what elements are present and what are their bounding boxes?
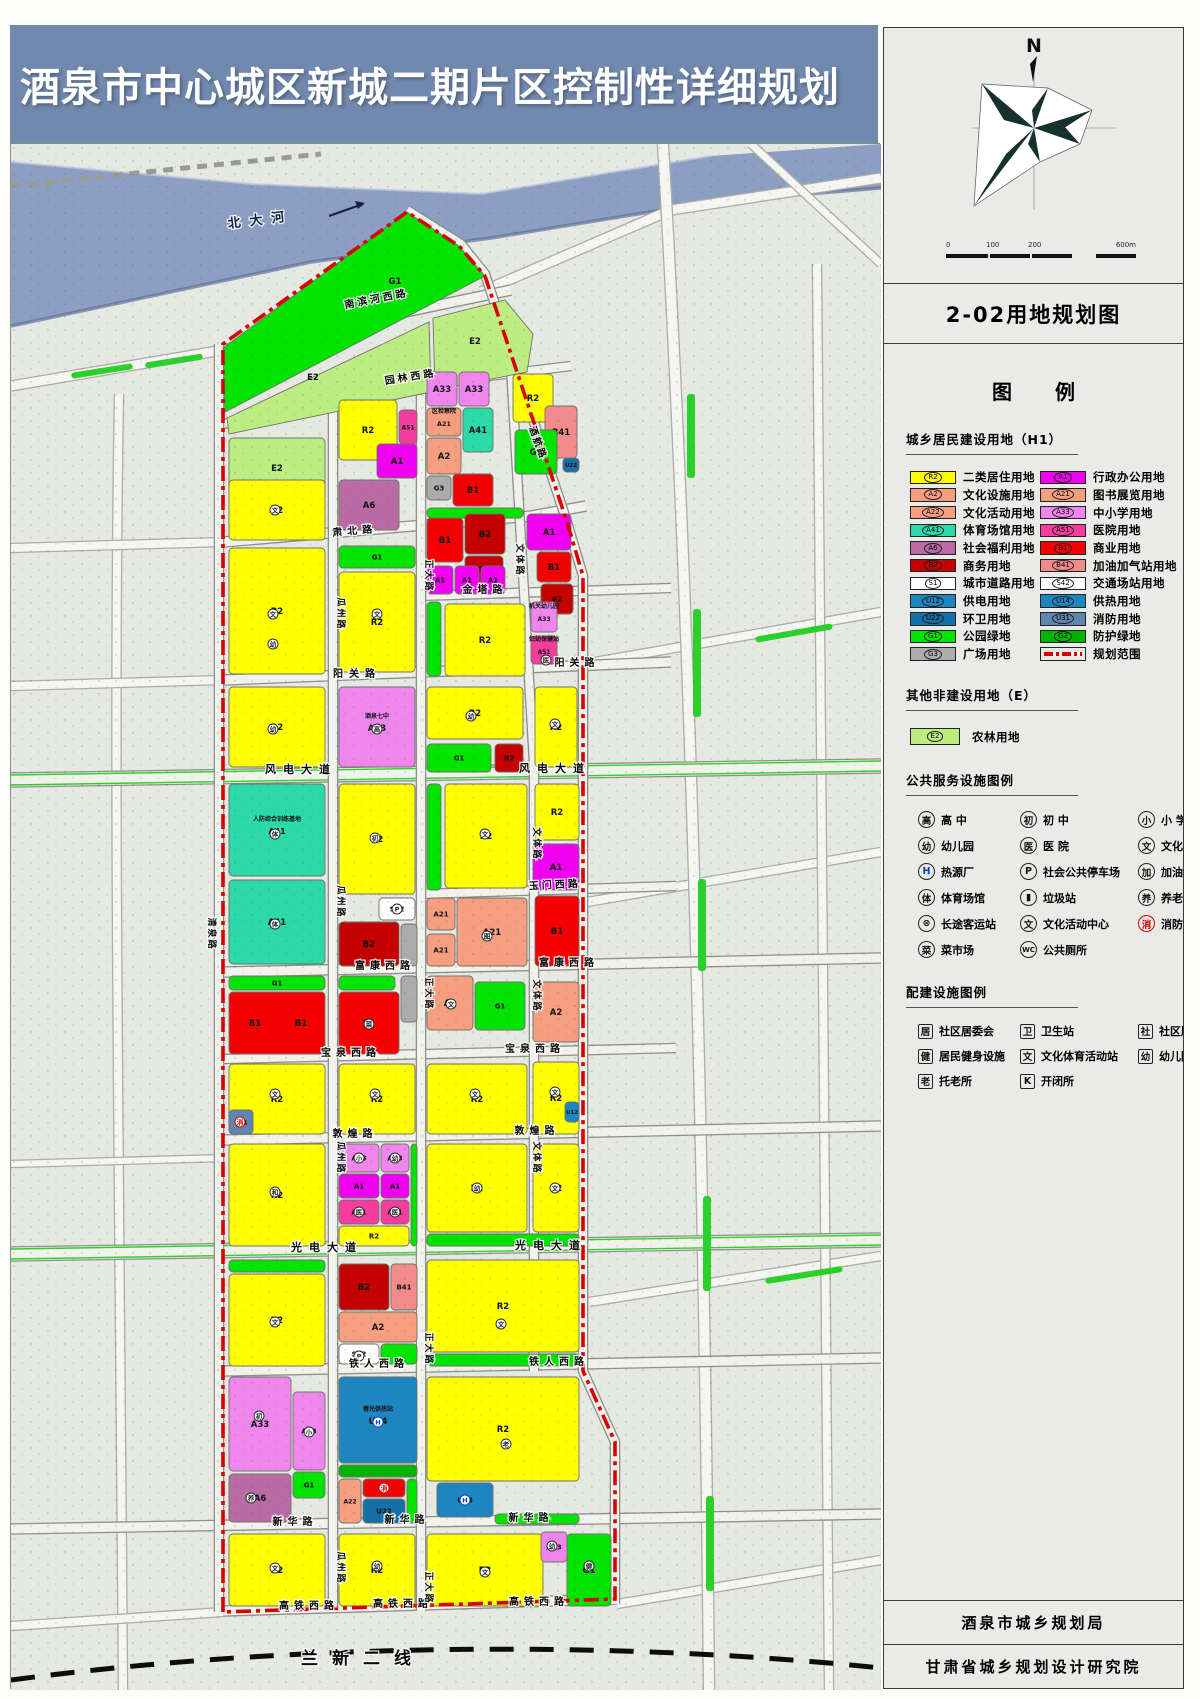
facility-marker-glyph: 文 [481,829,489,838]
legend-section: 图 例 城乡居民建设用地（H1） R2二类居住用地A1行政办公用地A2文化设施用… [884,344,1183,1601]
road-name-label: 光电大道 [514,1238,587,1252]
legend-item-label: 商业用地 [1093,540,1141,556]
legend-item: G2防护绿地 [1040,629,1177,644]
scale-tick-100: 100 [986,241,999,249]
facility-marker-glyph: 养 [247,1493,255,1502]
road-name-label: 风电大道 [519,761,591,775]
legend-swatch: U22 [910,612,956,626]
road-name-label: 文体路 [531,978,543,1012]
legend-swatch-code: A22 [922,507,944,518]
map-sidebar: N 0 100 200 600m 2-02用地规划图 图 例 城乡居民建设用地（… [883,27,1184,1689]
legend-swatch: G3 [910,647,956,661]
green-median [687,394,695,478]
legend-facility-label: 高 中 [941,812,967,828]
legend-item: A2文化设施用地 [910,488,1040,503]
facility-marker-glyph: 文 [551,1087,559,1096]
legend-item: E2农林用地 [910,727,1177,746]
legend-swatch-code: G1 [924,631,942,642]
legend-swatch: G1 [910,630,956,644]
legend-facility-label: 医 院 [1043,838,1069,854]
boundary-swatch-icon [1044,652,1082,656]
facility-marker-glyph: P [395,905,400,913]
legend-facility-item: 医医 院 [1020,837,1138,854]
legend-facility-label: 热源厂 [941,864,974,880]
org-bureau: 酒泉市城乡规划局 [884,1601,1183,1645]
parcel-label: A21 [433,911,448,919]
legend-swatch-code: U12 [922,596,944,607]
legend-item-label: 中小学用地 [1093,505,1153,521]
legend-facility-label: 小 学 [1161,812,1183,828]
legend-item-label: 社会福利用地 [963,540,1035,556]
legend-item-label: 商务用地 [963,558,1011,574]
legend-facility-item: 社社区服务中心 [1138,1023,1183,1039]
parcel-label: B2 [504,755,514,763]
文化体育活动站-icon: 文 [1020,1049,1035,1064]
legend-item: A51医院用地 [1040,523,1177,538]
facility-marker-glyph: 文 [471,1089,479,1098]
parcel-label: A51 [402,424,415,431]
road-name-label: 敦煌路 [333,1127,378,1140]
卫生站-icon: 卫 [1020,1024,1035,1039]
legend-facility-item: 幼幼儿园 [1138,1048,1183,1064]
体育场馆-icon: 体 [918,889,935,906]
legend-swatch: B41 [1040,559,1086,573]
legend-item: B2商务用地 [910,558,1040,573]
road-name-label: 正大路 [423,977,435,1010]
facility-marker-glyph: 体 [272,919,279,928]
legend-item-label: 文化设施用地 [963,487,1035,503]
facility-marker-glyph: 幼 [374,1561,381,1570]
legend-heading-h1: 城乡居民建设用地（H1） [906,429,1078,455]
legend-item-label: 城市道路用地 [963,575,1035,591]
legend-facility-item: WC公共厕所 [1020,941,1138,958]
parcel-label: A22 [344,1498,357,1505]
legend-facility-item: 小小 学 [1138,811,1183,828]
legend-swatch-code: G3 [924,649,942,660]
green-median [693,609,701,717]
legend-facility-label: 垃圾站 [1043,890,1076,906]
legend-facility-label: 养老院 [1161,890,1183,906]
parcel-label: B2 [363,940,375,950]
legend-facility-item: 卫卫生站 [1020,1023,1138,1039]
legend-item: U31消防用地 [1040,612,1177,627]
legend-item-label: 广场用地 [963,646,1011,662]
facility-marker-glyph: 文 [373,609,381,618]
facility-marker-glyph: 幼 [468,711,475,720]
facility-marker-glyph: 高 [374,724,381,733]
parcel-label: A33 [433,385,451,395]
parcel-label: A33 [538,616,551,623]
facility-marker-glyph: 文 [271,1563,279,1572]
社区居委会-icon: 居 [918,1024,933,1039]
legend-swatch: A33 [1040,506,1086,520]
文化活动中心-icon: 文 [1138,837,1155,854]
legend-facility-label: 社区服务中心 [1159,1023,1183,1039]
legend-facility-item: ▮垃圾站 [1020,889,1138,906]
legend-swatch-code: A33 [1052,507,1074,518]
legend-swatch-code: U14 [1052,596,1074,607]
road-name-label: 高铁西路 [279,1599,339,1612]
parcel-label: A1 [390,1183,400,1191]
parcel-label: G1 [304,1482,315,1490]
legend-item-label: 文化活动用地 [963,505,1035,521]
facility-marker-glyph: 文 [551,719,559,728]
legend-swatch: R2 [910,471,956,485]
facility-marker-glyph: 幼 [270,639,277,648]
road-name-label: 富康西路 [539,956,599,969]
legend-swatch: A22 [910,506,956,520]
legend-facility-label: 体育场馆 [941,890,985,906]
parcel-label: B1 [295,1019,307,1029]
legend-facilities-grid: 高高 中初初 中小小 学幼幼儿园医医 院文文化活动中心H热源厂P社会公共停车场加… [918,811,1179,958]
legend-facility-item: 幼幼儿园 [918,837,1020,854]
居民健身设施-icon: 健 [918,1049,933,1064]
facility-marker-glyph: 幼 [392,1153,399,1162]
parcel-G1 [229,1260,325,1272]
parcel-label: A21 [433,947,448,955]
road-name-label: 正大路 [423,1571,435,1604]
facility-marker-glyph: 文 [371,1089,379,1098]
facility-marker-glyph: 文 [497,1319,505,1328]
parcel-label: A1 [488,577,498,585]
legend-heading-config: 配建设施图例 [906,982,1078,1008]
road-name-label: 瓜州路 [335,1551,347,1584]
legend-swatch [1040,647,1086,661]
parcel-label: E2 [271,464,283,474]
parcel-label: A33 [251,1420,269,1430]
legend-facility-item: 高高 中 [918,811,1020,828]
legend-facility-item: 体体育场馆 [918,889,1020,906]
parcel-label: R2 [551,808,564,818]
road-name-label: 阳关路 [555,656,600,669]
开闭所-icon: K [1020,1074,1035,1089]
legend-item: A41体育场馆用地 [910,523,1040,538]
legend-swatch-code: S1 [925,578,942,589]
road-name-label: 正大路 [423,559,435,592]
legend-item-label: 体育场馆用地 [963,522,1035,538]
legend-swatch: B2 [910,559,956,573]
road-name-label: 瓜州路 [335,1141,347,1174]
facility-marker-glyph: 医 [356,1208,363,1216]
facility-marker-glyph: 文 [271,505,279,514]
compass-rose-icon: N 0 100 200 600m [884,28,1182,281]
parcel-G1 [427,784,441,890]
legend-heading-e: 其他非建设用地（E） [906,685,1078,711]
parcel-label: A1 [543,528,556,538]
facility-marker-glyph: 医 [392,1208,399,1216]
north-label: N [1026,35,1042,57]
legend-landuse-grid: R2二类居住用地A1行政办公用地A2文化设施用地A21图书展览用地A22文化活动… [910,470,1177,661]
长途客运站-icon: ⊗ [918,915,935,932]
facility-marker-glyph: 幼 [474,1183,481,1192]
legend-swatch-code: B2 [924,560,941,571]
parcel-G3 [401,924,417,966]
legend-facility-label: 社会公共停车场 [1043,864,1120,880]
legend-item-label: 加油加气站用地 [1093,558,1177,574]
legend-item-label: 农林用地 [972,729,1020,745]
parcel-label: A21 [437,420,452,428]
legend-facility-label: 居民健身设施 [939,1048,1005,1064]
facility-marker-glyph: 文 [447,999,455,1008]
parcel-G1 [339,976,395,990]
legend-facility-label: 菜市场 [941,942,974,958]
scale-tick-0: 0 [946,241,950,249]
facility-marker-glyph: 幼 [549,1541,556,1550]
legend-facility-item: ⊗长途客运站 [918,915,1020,932]
legend-item-label: 图书展览用地 [1093,487,1165,503]
文化活动中心-icon: 文 [1020,915,1037,932]
养老院-icon: 养 [1138,889,1155,906]
legend-item: U14供热用地 [1040,594,1177,609]
parcel-sublabel: 区检察院 [432,407,456,415]
公共厕所-icon: WC [1020,941,1037,958]
facility-marker-glyph: 初 [372,833,379,842]
parcel-label: G1 [495,1003,506,1011]
parcel-label: B2 [358,1283,370,1293]
road-name-label: 新华路 [273,1515,318,1528]
legend-swatch-code: B1 [1054,543,1071,554]
parcel-sublabel: 人防综合训练基地 [253,815,301,823]
parcel-label: A1 [391,457,404,467]
road-name-label: 敦煌路 [515,1124,560,1137]
legend-facility-item: K开闭所 [1020,1073,1138,1089]
legend-item: 规划范围 [1040,647,1177,662]
legend-item: S1城市道路用地 [910,576,1040,591]
facility-marker-glyph: H [375,1418,380,1426]
facility-marker-glyph: 健 [586,1561,593,1570]
facility-marker-glyph: 文 [271,1089,279,1098]
facility-marker-glyph: 图 [484,931,491,940]
legend-facility-item: 加加油站 [1138,863,1183,880]
parcel-sublabel: 机关幼儿园 [529,602,559,610]
legend-swatch-code: E2 [927,731,944,742]
legend-swatch: U14 [1040,594,1086,608]
legend-item: B1商业用地 [1040,541,1177,556]
小 学-icon: 小 [1138,811,1155,828]
legend-item: G3广场用地 [910,647,1040,662]
legend-heading-facilities: 公共服务设施图例 [906,770,1078,796]
初 中-icon: 初 [1020,811,1037,828]
legend-facility-item: P社会公共停车场 [1020,863,1138,880]
legend-swatch-code: A1 [1054,472,1071,483]
road-name-label: 文体路 [531,826,543,860]
legend-swatch-code: S42 [1052,578,1073,589]
road-name-label: 兰新二线 [301,1648,425,1669]
legend-item: S42交通场站用地 [1040,576,1177,591]
legend-facility-label: 初 中 [1043,812,1069,828]
facility-marker-glyph: 老 [502,1439,510,1448]
parcel-label: R2 [497,1425,510,1435]
road-name-label: 清泉路 [206,917,218,950]
legend-swatch: S1 [910,577,956,591]
road-name-label: 铁人西路 [529,1355,589,1368]
parcel-label: G1 [372,554,383,562]
legend-swatch: A21 [1040,488,1086,502]
社区服务中心-icon: 社 [1138,1024,1153,1039]
医 院-icon: 医 [1020,837,1037,854]
legend-swatch: E2 [910,728,960,745]
legend-swatch-code: A6 [924,543,941,554]
compass-section: N 0 100 200 600m [884,28,1183,284]
parcel-label: G1 [272,980,283,988]
parcel-label: R2 [479,636,492,646]
legend-swatch: S42 [1040,577,1086,591]
legend-item-label: 供电用地 [963,593,1011,609]
parcel-label: G3 [434,485,445,493]
road-name-label: 新华路 [509,1511,554,1524]
legend-facility-label: 幼儿园 [1159,1048,1183,1064]
legend-title: 图 例 [884,376,1183,405]
legend-facility-item: H热源厂 [918,863,1020,880]
legend-swatch: A1 [1040,471,1086,485]
legend-facility-label: 卫生站 [1041,1023,1074,1039]
parcel-sublabel: 妇幼保健站 [529,635,559,643]
road-name-label: 新华路 [385,1513,430,1526]
legend-item-label: 消防用地 [1093,611,1141,627]
legend-facility-label: 幼儿园 [941,838,974,854]
legend-facility-item: 菜菜市场 [918,941,1020,958]
parcel-label: A2 [372,1323,385,1333]
legend-swatch-code: U31 [1052,613,1074,624]
facility-marker-glyph: 初 [256,1411,263,1420]
parcel-G2 [339,1465,417,1477]
parcel-label: R2 [527,394,540,404]
facility-marker-glyph: 消 [237,1117,244,1126]
legend-e-grid: E2农林用地 [910,727,1177,746]
legend-swatch: U12 [910,594,956,608]
legend-item-label: 行政办公用地 [1093,469,1165,485]
legend-swatch: G2 [1040,630,1086,644]
facility-marker-glyph: H [462,1496,467,1504]
legend-item-label: 交通场站用地 [1093,575,1165,591]
parcel-label: A1 [462,577,472,585]
map-canvas: G1E2E2E2R2A51A33A33区检察院A21A41A2A1A6R2G3B… [11,144,881,1690]
facility-marker-glyph: 小 [355,1153,363,1162]
parcel-label: B41 [396,1284,411,1292]
legend-item-label: 医院用地 [1093,522,1141,538]
幼儿园-icon: 幼 [918,837,935,854]
legend-facility-label: 消防站 [1161,916,1183,932]
road-name-label: 宝泉西路 [505,1042,565,1055]
sheet-title: 2-02用地规划图 [884,284,1183,344]
road-name-label: 正大路 [423,1332,435,1365]
legend-swatch-code: A51 [1052,525,1074,536]
parcel-G1 [411,1144,417,1246]
parcel-label: B2 [479,530,491,540]
legend-facility-label: 加油站 [1161,864,1183,880]
facility-marker-glyph: 文 [269,609,277,618]
road-name-label: 高铁西路 [509,1595,569,1608]
scale-tick-600: 600m [1116,241,1136,249]
facility-marker-glyph: 文 [551,1183,559,1192]
legend-item-label: 环卫用地 [963,611,1011,627]
legend-swatch: A41 [910,524,956,538]
parcel-sublabel: 春光供热站 [362,1405,393,1413]
legend-config-grid: 居社区居委会卫卫生站社社区服务中心健居民健身设施文文化体育活动站幼幼儿园老托老所… [918,1023,1179,1089]
parcel-G3 [401,976,417,1022]
legend-item: U12供电用地 [910,594,1040,609]
legend-item-label: 公园绿地 [963,628,1011,644]
legend-facility-label: 文化体育活动站 [1041,1048,1118,1064]
消防站-icon: 消 [1138,915,1155,932]
facility-marker-glyph: 医 [543,656,550,664]
facility-marker-glyph: 文 [271,1317,279,1326]
parcel-label: B1 [439,536,451,546]
parcel-B1 [229,992,325,1054]
facility-marker-glyph: 菜 [365,1019,373,1028]
legend-swatch-code: U22 [922,613,944,624]
road-name-label: 瓜州路 [335,597,347,630]
facility-marker-glyph: 文 [481,1567,489,1576]
parcel-label: G1 [389,277,402,287]
org-institute: 甘肃省城乡规划设计研究院 [884,1645,1183,1688]
legend-facility-label: 文化活动中心 [1043,916,1109,932]
facility-marker-glyph: 和 [271,1187,279,1196]
facility-marker-glyph: 幼 [270,724,277,733]
legend-facility-label: 开闭所 [1041,1073,1074,1089]
road-name-label: 铁人西路 [349,1357,409,1370]
road-name-label: 文体路 [514,542,526,576]
legend-facility-item: 消消防站 [1138,915,1183,932]
legend-swatch-code: A41 [922,525,944,536]
legend-swatch-code: R2 [924,472,941,483]
legend-item: A33中小学用地 [1040,505,1177,520]
scale-tick-200: 200 [1028,241,1041,249]
parcel-label: E2 [307,373,319,383]
legend-swatch: A2 [910,488,956,502]
legend-item: A1行政办公用地 [1040,470,1177,485]
parcel-label: A2 [550,1008,563,1018]
green-median [706,1496,714,1591]
parcel-label: U22 [565,463,577,469]
parcel-label: B1 [467,486,479,496]
legend-facility-item: 初初 中 [1020,811,1138,828]
facility-marker-glyph: 消 [381,1483,388,1492]
parcel-label: A41 [469,426,487,436]
legend-swatch-code: B41 [1052,560,1074,571]
parcel-label: B1 [548,563,560,573]
road-name-label: 富康西路 [355,959,415,972]
parcel-G1 [427,602,441,676]
legend-swatch: A6 [910,541,956,555]
legend-item: R2二类居住用地 [910,470,1040,485]
road-name-label: 瓜州路 [335,885,347,918]
road-name-label: 光电大道 [290,1240,363,1254]
parcel-label: A1 [354,1183,364,1191]
plan-sheet: 酒泉市中心城区新城二期片区控制性详细规划 G1E2E2E2R2A51A33A33… [0,0,1200,1699]
托老所-icon: 老 [918,1074,933,1089]
road-name-label: 金塔路 [462,583,508,596]
legend-facility-label: 公共厕所 [1043,942,1087,958]
菜市场-icon: 菜 [918,941,935,958]
legend-item: A22文化活动用地 [910,505,1040,520]
legend-facility-label: 托老所 [939,1073,972,1089]
legend-item: B41加油加气站用地 [1040,558,1177,573]
幼儿园-icon: 幼 [1138,1049,1153,1064]
legend-facility-item: 文文化体育活动站 [1020,1048,1138,1064]
road-name-label: 文体路 [531,1140,543,1174]
road-name-label: 风电大道 [265,762,337,776]
legend-item-label: 防护绿地 [1093,628,1141,644]
parcel-label: A2 [438,452,451,462]
legend-facility-label: 社区居委会 [939,1023,994,1039]
legend-swatch-code: G2 [1054,631,1072,642]
land-use-map: G1E2E2E2R2A51A33A33区检察院A21A41A2A1A6R2G3B… [10,143,880,1689]
parcel-label: B1 [551,927,563,937]
legend-facility-item: 文文化活动中心 [1138,837,1183,854]
parcel-label: A1 [435,577,445,585]
legend-swatch: A51 [1040,524,1086,538]
